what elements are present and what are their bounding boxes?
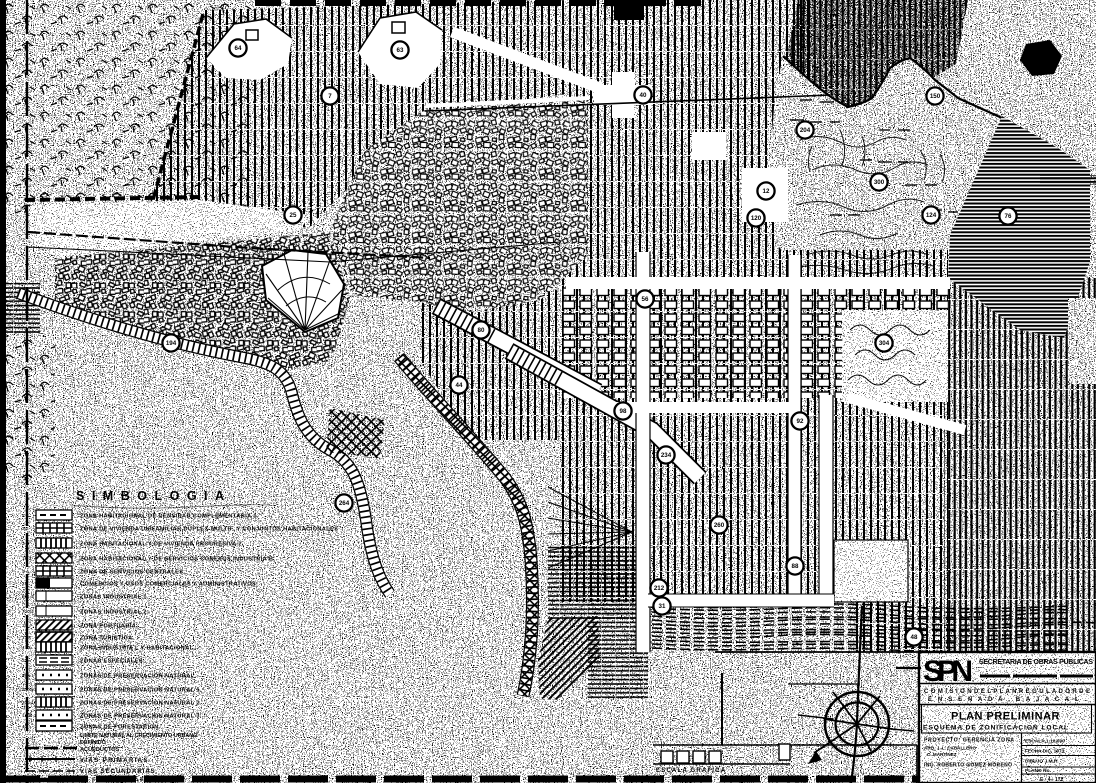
svg-text:PROYECTO: GERENCIA ZONA: PROYECTO: GERENCIA ZONA xyxy=(924,738,1014,744)
svg-text:260: 260 xyxy=(714,522,725,529)
svg-text:56: 56 xyxy=(642,296,649,303)
svg-text:C O M I S I O N D E L P L A: C O M I S I O N D E L P L A N R E G U L … xyxy=(924,689,1090,695)
svg-text:2-4: 2-4 xyxy=(22,526,29,531)
svg-text:400-1: 400-1 xyxy=(22,673,34,678)
svg-text:ZONA PORTUARIA.: ZONA PORTUARIA. xyxy=(80,624,138,630)
svg-text:44: 44 xyxy=(456,382,463,389)
svg-text:7-8: 7-8 xyxy=(22,541,29,546)
svg-text:64: 64 xyxy=(235,45,242,52)
svg-text:ZONA TURISTICA.: ZONA TURISTICA. xyxy=(80,636,135,642)
svg-text:92: 92 xyxy=(797,418,804,425)
svg-text:201-1: 201-1 xyxy=(22,594,34,599)
svg-text:15-2: 15-2 xyxy=(22,556,32,561)
svg-text:80: 80 xyxy=(478,327,485,334)
svg-text:ZONAS ESPECIALES.: ZONAS ESPECIALES. xyxy=(80,659,145,665)
svg-text:63: 63 xyxy=(397,47,404,54)
svg-text:DEFINIDO: DEFINIDO xyxy=(80,740,106,746)
svg-text:FECHA DIC. 1973: FECHA DIC. 1973 xyxy=(1025,749,1065,755)
svg-text:ZONA DE SERVICIOS CENTRALES.: ZONA DE SERVICIOS CENTRALES. xyxy=(80,570,185,576)
svg-text:31: 31 xyxy=(659,603,666,610)
svg-text:234: 234 xyxy=(661,452,672,459)
svg-text:1200-1: 1200-1 xyxy=(22,713,37,718)
svg-text:200-1: 200-1 xyxy=(22,700,34,705)
svg-text:ZONA INDUSTRIA L Y HABITACIONA: ZONA INDUSTRIA L Y HABITACIONAL. xyxy=(80,646,196,652)
svg-text:88: 88 xyxy=(792,563,799,570)
svg-text:ESQUEMA DE ZONIFICACION LOC: ESQUEMA DE ZONIFICACION LOCAL xyxy=(923,725,1068,732)
svg-text:264: 264 xyxy=(339,500,350,507)
svg-text:204: 204 xyxy=(800,127,811,134)
svg-text:47-1: 47-1 xyxy=(22,645,32,650)
svg-text:21: 21 xyxy=(22,581,28,586)
svg-text:32: 32 xyxy=(22,658,28,663)
svg-text:12: 12 xyxy=(763,188,770,195)
svg-text:PLANO No.: PLANO No. xyxy=(1025,768,1051,774)
svg-text:ZONA HABITACIONAL Y DE VIVIEND: ZONA HABITACIONAL Y DE VIVIENDA PROGRESI… xyxy=(80,542,244,548)
svg-text:E N S E N A D A , B A J: E N S E N A D A , B A J A C A L . xyxy=(928,697,1086,703)
svg-text:ZONA HABITACIONAL Y DE SERVICI: ZONA HABITACIONAL Y DE SERVICIOS CONEXOS… xyxy=(80,557,275,563)
svg-text:ZONA DE VIVIENDA UNIFAMILIAR,D: ZONA DE VIVIENDA UNIFAMILIAR,DUPLEX-MULT… xyxy=(80,527,338,533)
svg-text:194: 194 xyxy=(166,340,177,347)
svg-text:ZONAS INDUSTRIAL 1.: ZONAS INDUSTRIAL 1. xyxy=(80,595,149,601)
svg-text:ZONAS DE FORESTACION.: ZONAS DE FORESTACION. xyxy=(80,725,161,731)
svg-text:E - 4 - 172: E - 4 - 172 xyxy=(1040,777,1064,783)
svg-text:7: 7 xyxy=(328,93,332,100)
svg-text:SIMBOLOGIA: SIMBOLOGIA xyxy=(76,489,232,503)
svg-text:120: 120 xyxy=(751,215,762,222)
svg-text:304: 304 xyxy=(879,340,890,347)
svg-text:25: 25 xyxy=(290,212,297,219)
svg-text:ZONAS DE PRESERVACION NATUR: ZONAS DE PRESERVACION NATURAL 2. xyxy=(80,701,202,707)
svg-text:7-4: 7-4 xyxy=(22,569,29,574)
svg-text:ZONA HABITACIONAL DE DENSIDAD: ZONA HABITACIONAL DE DENSIDAD COMPLEMENT… xyxy=(80,514,259,520)
svg-text:C. MARTINEZ: C. MARTINEZ xyxy=(927,752,957,757)
svg-text:ACUEDUCTOS: ACUEDUCTOS xyxy=(80,747,120,753)
svg-text:300: 300 xyxy=(874,179,885,186)
svg-text:1-2: 1-2 xyxy=(22,513,29,518)
svg-text:98: 98 xyxy=(620,408,627,415)
svg-text:COMERCIOS Y USOS COMERCIALES Y: COMERCIOS Y USOS COMERCIALES Y ADMINISTR… xyxy=(80,582,258,588)
svg-text:ZONAS INDUSTRIAL 2.: ZONAS INDUSTRIAL 2. xyxy=(80,610,149,616)
svg-text:FERROC. LINEA FUTURA: FERROC. LINEA FUTURA xyxy=(92,778,165,783)
svg-text:48: 48 xyxy=(911,634,918,641)
svg-text:40: 40 xyxy=(22,724,28,729)
svg-text:124: 124 xyxy=(926,212,937,219)
svg-text:ZONAS DE PRESERVACION NATUR: ZONAS DE PRESERVACION NATURAL 1. xyxy=(80,688,202,694)
svg-text:VIAS SECUNDARIAS: VIAS SECUNDARIAS xyxy=(80,769,156,775)
svg-text:76: 76 xyxy=(1005,213,1012,220)
svg-text:212: 212 xyxy=(654,585,665,592)
svg-text:170: 170 xyxy=(22,635,30,640)
svg-text:700-1: 700-1 xyxy=(22,609,34,614)
svg-text:ESCALA 1:10,000: ESCALA 1:10,000 xyxy=(1025,739,1065,745)
svg-text:1000-1: 1000-1 xyxy=(22,687,37,692)
svg-text:150: 150 xyxy=(930,93,941,100)
svg-text:ZONAS DE PRESERVACION NATUR: ZONAS DE PRESERVACION NATURAL 3. xyxy=(80,714,202,720)
svg-text:LIMITE NATURAL AL CRECIMIENTO: LIMITE NATURAL AL CRECIMIENTO URBANO xyxy=(80,733,197,739)
svg-text:40: 40 xyxy=(640,92,647,99)
svg-text:ESCALA GRAFICA: ESCALA GRAFICA xyxy=(656,768,726,774)
svg-text:VIAS PRIMARIAS: VIAS PRIMARIAS xyxy=(80,758,149,764)
svg-text:PLAN PRELIMINAR: PLAN PRELIMINAR xyxy=(951,711,1061,723)
svg-text:ARQ. J. L. CABALLERO: ARQ. J. L. CABALLERO xyxy=(924,746,976,751)
svg-text:DIBUJO J.M.R.: DIBUJO J.M.R. xyxy=(1025,759,1059,765)
svg-text:SECRETARIA DE OBRAS PUBLICAS: SECRETARIA DE OBRAS PUBLICAS xyxy=(979,659,1093,666)
svg-text:ZONAS DE PRESERVACION NATUR: ZONAS DE PRESERVACION NATURAL. xyxy=(80,674,196,680)
svg-text:ING. ROBERTO GOMEZ MORENO: ING. ROBERTO GOMEZ MORENO xyxy=(924,763,1012,769)
svg-text:24: 24 xyxy=(22,623,28,628)
